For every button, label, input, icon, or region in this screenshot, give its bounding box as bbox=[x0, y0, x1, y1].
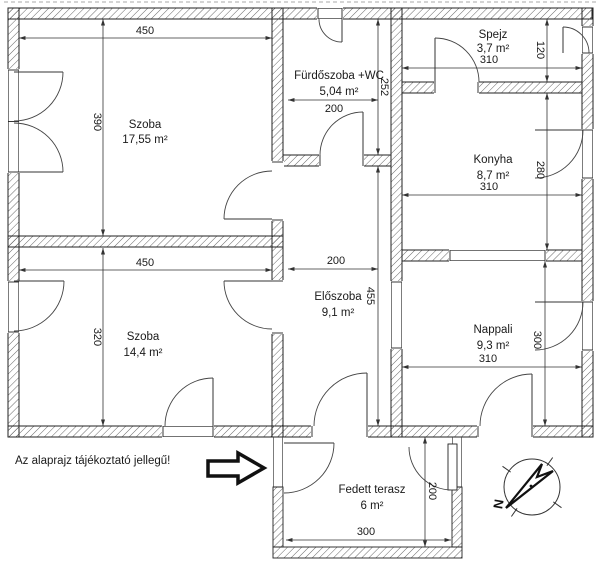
north-letter: N bbox=[490, 498, 506, 510]
dim-szoba2-width: 450 bbox=[136, 257, 154, 269]
floor-plan-page: 450 390 450 320 252 200 310 120 280 310 … bbox=[0, 0, 600, 565]
dim-nappali-width: 310 bbox=[479, 353, 497, 365]
dim-szoba2-height: 320 bbox=[91, 328, 103, 346]
dim-konyha-width: 310 bbox=[480, 181, 498, 193]
dim-konyha-height: 280 bbox=[534, 161, 546, 179]
north-arrow-icon: N bbox=[490, 458, 561, 517]
room-area-szoba2: 14,4 m² bbox=[124, 347, 163, 359]
dim-spejz-height: 120 bbox=[534, 41, 546, 59]
dim-eloszoba-height: 455 bbox=[364, 287, 376, 305]
room-name-szoba2: Szoba bbox=[127, 331, 160, 343]
dim-szoba1-height: 390 bbox=[91, 113, 103, 131]
floor-plan-drawing: 450 390 450 320 252 200 310 120 280 310 … bbox=[0, 0, 600, 565]
disclaimer-note: Az alaprajz tájékoztató jellegű! bbox=[15, 455, 170, 467]
walls bbox=[8, 8, 593, 558]
room-name-terasz: Fedett terasz bbox=[338, 484, 405, 496]
dimension-lines bbox=[19, 19, 582, 547]
dim-szoba1-width: 450 bbox=[136, 25, 154, 37]
dim-furdoszoba-width: 200 bbox=[325, 103, 343, 115]
entrance-arrow-icon bbox=[208, 453, 264, 483]
room-name-nappali: Nappali bbox=[474, 324, 513, 336]
room-name-furdoszoba: Fürdőszoba +WC bbox=[294, 70, 384, 82]
room-area-terasz: 6 m² bbox=[361, 500, 384, 512]
room-name-eloszoba: Előszoba bbox=[314, 291, 362, 303]
room-name-spejz: Spejz bbox=[479, 29, 508, 41]
dim-terasz-width: 300 bbox=[357, 526, 375, 538]
room-area-eloszoba: 9,1 m² bbox=[322, 307, 355, 319]
dim-spejz-width: 310 bbox=[480, 54, 498, 66]
room-name-konyha: Konyha bbox=[473, 154, 513, 166]
room-area-nappali: 9,3 m² bbox=[477, 340, 510, 352]
room-area-furdoszoba: 5,04 m² bbox=[320, 86, 359, 98]
room-area-szoba1: 17,55 m² bbox=[122, 134, 168, 146]
room-name-szoba1: Szoba bbox=[129, 119, 162, 131]
room-area-spejz: 3,7 m² bbox=[477, 43, 510, 55]
dim-nappali-height: 300 bbox=[531, 331, 543, 349]
room-area-konyha: 8,7 m² bbox=[477, 170, 510, 182]
dim-terasz-height: 200 bbox=[426, 482, 438, 500]
dim-eloszoba-width: 200 bbox=[327, 255, 345, 267]
